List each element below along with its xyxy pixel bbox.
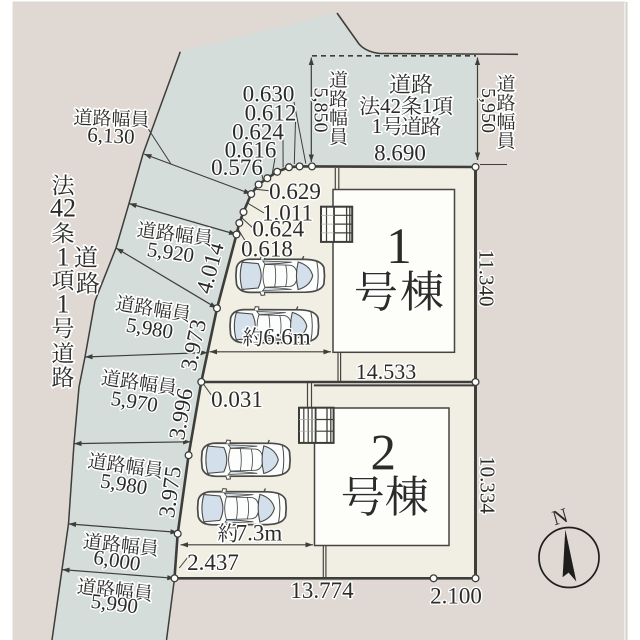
svg-text:14.533: 14.533 xyxy=(356,359,417,384)
svg-text:0.618: 0.618 xyxy=(241,237,293,262)
svg-text:1: 1 xyxy=(57,290,70,319)
svg-text:1: 1 xyxy=(57,243,70,272)
svg-text:6:6m: 6:6m xyxy=(263,325,310,350)
svg-text:2.437: 2.437 xyxy=(187,550,239,575)
svg-text:1: 1 xyxy=(386,219,412,275)
svg-text:0.576: 0.576 xyxy=(211,155,263,180)
svg-text:7.3m: 7.3m xyxy=(236,521,283,546)
svg-text:2: 2 xyxy=(371,426,397,482)
svg-text:0.031: 0.031 xyxy=(211,387,263,412)
svg-text:5,850: 5,850 xyxy=(310,88,332,133)
svg-text:5,950: 5,950 xyxy=(477,88,499,133)
svg-text:13.774: 13.774 xyxy=(290,578,354,603)
svg-text:10.334: 10.334 xyxy=(476,456,500,514)
svg-text:1: 1 xyxy=(422,94,433,118)
svg-text:11.340: 11.340 xyxy=(475,250,499,307)
svg-text:42: 42 xyxy=(50,194,76,223)
svg-text:42: 42 xyxy=(380,94,401,118)
svg-text:8.690: 8.690 xyxy=(374,141,426,166)
svg-text:6,130: 6,130 xyxy=(87,122,135,148)
svg-text:1: 1 xyxy=(372,114,383,138)
svg-text:2.100: 2.100 xyxy=(430,584,482,609)
